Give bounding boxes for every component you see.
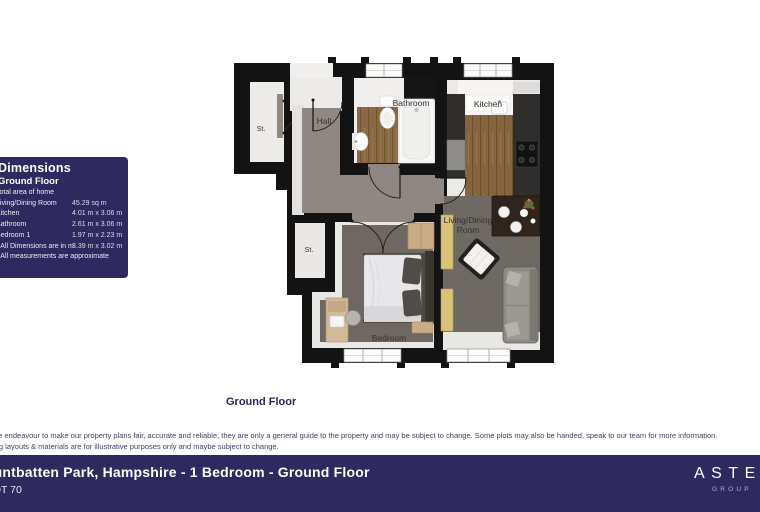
window-symbol: [447, 349, 510, 362]
room-living-dining: [434, 176, 540, 351]
label-storage-mid: St.: [305, 247, 314, 254]
footer-title: Mountbatten Park, Hampshire - 1 Bedroom …: [0, 464, 370, 480]
sink-symbol: [352, 133, 368, 151]
window-symbol: [464, 64, 512, 77]
floor-plan: St. Hall Bathroom Kitchen Living/Dining …: [210, 52, 575, 372]
brand-logo-subtext: GROUP: [712, 486, 752, 493]
dimensions-panel-title: Dimensions: [0, 161, 71, 175]
dimension-footnote: * All measurements are approximate: [0, 252, 109, 263]
dimension-values: 45.29 sq m 4.01 m x 3.06 m 2.61 m x 3.06…: [72, 199, 122, 253]
dining-table-symbol: [492, 196, 540, 236]
dimension-value: 1.97 m x 2.23 m: [72, 231, 122, 242]
label-hall: Hall: [317, 116, 332, 126]
label-living-line2: Room: [457, 225, 480, 235]
bathroom-cupboard: [404, 78, 435, 100]
bedside-bench-symbol: [412, 322, 433, 333]
dimensions-panel: Dimensions Ground Floor Total area of ho…: [0, 157, 128, 278]
shelving-symbol: [441, 289, 453, 331]
bed-symbol: [363, 251, 434, 324]
hob-symbol: [516, 141, 538, 167]
dimensions-panel-subtitle: Ground Floor: [0, 176, 59, 187]
plan-caption: Ground Floor: [226, 396, 296, 408]
footer-bar: Mountbatten Park, Hampshire - 1 Bedroom …: [0, 455, 760, 512]
label-living-line1: Living/Dining: [444, 215, 493, 225]
label-bedroom: Bedroom: [372, 333, 407, 343]
bathtub-symbol: [399, 99, 434, 163]
footer-plot-number: PLOT 70: [0, 484, 22, 496]
desk-chair-symbol: [346, 311, 361, 326]
dimension-value: 3.39 m x 3.02 m: [72, 242, 122, 253]
brand-logo: ASTER: [694, 465, 760, 483]
window-symbol: [344, 349, 401, 362]
disclaimer-line1: While we endeavour to make our property …: [0, 431, 717, 440]
window-symbol: [366, 64, 402, 77]
room-kitchen: [447, 80, 540, 196]
label-bathroom: Bathroom: [393, 98, 430, 108]
dimension-value: 2.61 m x 3.06 m: [72, 220, 122, 231]
label-storage-top: St.: [257, 126, 266, 133]
dimension-label: Total area of home: [0, 188, 109, 199]
disclaimer-line2: Planting layouts & materials are for ill…: [0, 442, 279, 451]
sofa-symbol: [503, 267, 538, 343]
dimension-value: 45.29 sq m: [72, 199, 122, 210]
label-kitchen: Kitchen: [474, 99, 503, 109]
dimension-value: 4.01 m x 3.06 m: [72, 209, 122, 220]
